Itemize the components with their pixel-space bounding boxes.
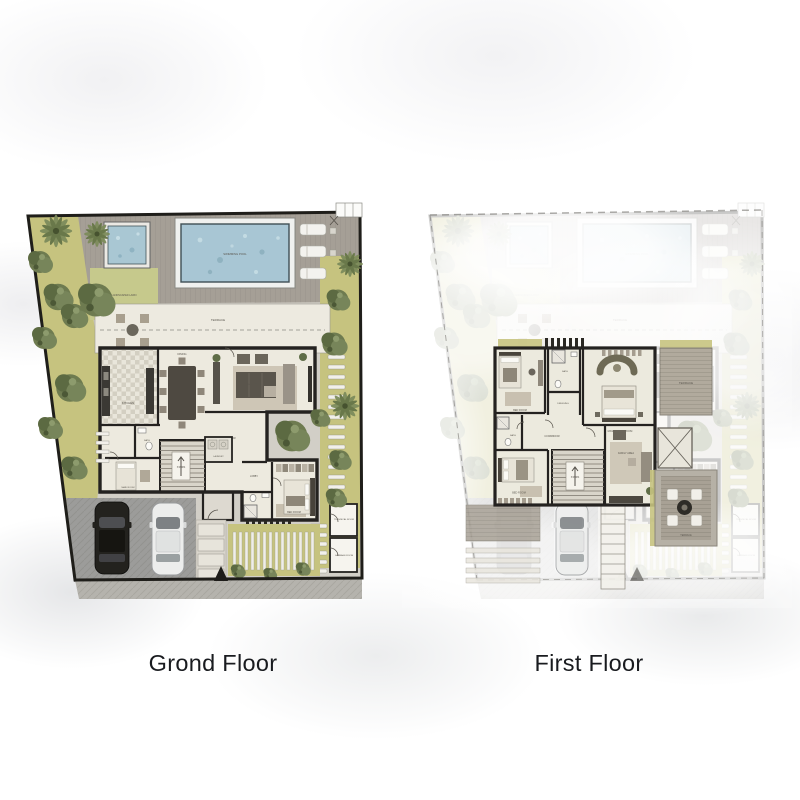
walkway-ladder bbox=[601, 505, 625, 589]
stairs-ground: STAIRS bbox=[160, 440, 205, 492]
floor-plans-page: SWIMMING POOL TERRACE LANDSCAPED LAWN K bbox=[0, 0, 800, 800]
room-label-lobby: LOBBY bbox=[250, 475, 258, 478]
floor-plans-canvas: SWIMMING POOL TERRACE LANDSCAPED LAWN K bbox=[0, 0, 800, 800]
room-label-garbage: GARBAGE ROOM bbox=[335, 554, 353, 557]
skylight-void bbox=[658, 428, 692, 468]
car-white bbox=[150, 503, 187, 575]
slat-screen-garden bbox=[228, 524, 320, 580]
plunge-pool bbox=[104, 222, 150, 268]
terrace-outdoor: TERRACE bbox=[650, 470, 717, 546]
swimming-pool: SWIMMING POOL bbox=[175, 218, 295, 288]
terrace-upper: TERRACE bbox=[660, 348, 712, 415]
room-label-terrace-upper: TERRACE bbox=[679, 381, 693, 385]
car-dark bbox=[93, 502, 132, 574]
room-label-dining: DINING bbox=[177, 352, 186, 356]
service-rooms: TECHNICAL ROOM GARBAGE ROOM bbox=[330, 504, 357, 572]
room-label-laundry: LAUNDRY bbox=[213, 455, 224, 458]
room-label-bedroom-3: BED ROOM bbox=[512, 492, 526, 495]
first-floor-plan: TERRACE BED ROOM bbox=[360, 184, 800, 623]
car-white-first bbox=[554, 503, 591, 575]
room-label-swimming-pool: SWIMMING POOL bbox=[223, 252, 247, 256]
master-bedroom: MASTER BED ROOM bbox=[595, 358, 643, 433]
room-label-corridor-first: CORRIDOR bbox=[544, 434, 559, 438]
stairs-first: STAIRS bbox=[552, 450, 604, 505]
room-label-dressing: DRESSING bbox=[557, 403, 569, 405]
room-label-bath: BATH bbox=[144, 439, 150, 442]
entry-vestibule bbox=[203, 492, 233, 520]
room-label-bedroom: BED ROOM bbox=[287, 511, 301, 514]
ground-floor-plan: SWIMMING POOL TERRACE LANDSCAPED LAWN K bbox=[28, 203, 363, 599]
room-label-kitchen: KITCHEN bbox=[122, 401, 134, 405]
room-label-technical: TECHNICAL ROOM bbox=[334, 518, 354, 521]
room-label-bath-1: BATH bbox=[562, 370, 568, 373]
laundry: LAUNDRY bbox=[205, 437, 232, 462]
room-label-bath-2: BATH bbox=[510, 434, 516, 437]
room-label-terrace: TERRACE bbox=[211, 318, 225, 322]
room-label-stairs: STAIRS bbox=[177, 466, 186, 469]
room-label-stairs-first: STAIRS bbox=[571, 476, 580, 479]
caption-ground-floor: Grond Floor bbox=[13, 646, 413, 680]
room-label-terrace-outdoor: TERRACE bbox=[680, 534, 692, 537]
caption-first-floor: First Floor bbox=[389, 646, 789, 680]
room-label-family: FAMILY AREA bbox=[618, 452, 634, 455]
room-label-maid-room: MAID ROOM bbox=[122, 486, 135, 489]
room-label-salon: SALON bbox=[247, 382, 257, 386]
room-label-lawn: LANDSCAPED LAWN bbox=[112, 294, 137, 297]
room-label-bedroom-2: BED ROOM bbox=[513, 409, 527, 412]
